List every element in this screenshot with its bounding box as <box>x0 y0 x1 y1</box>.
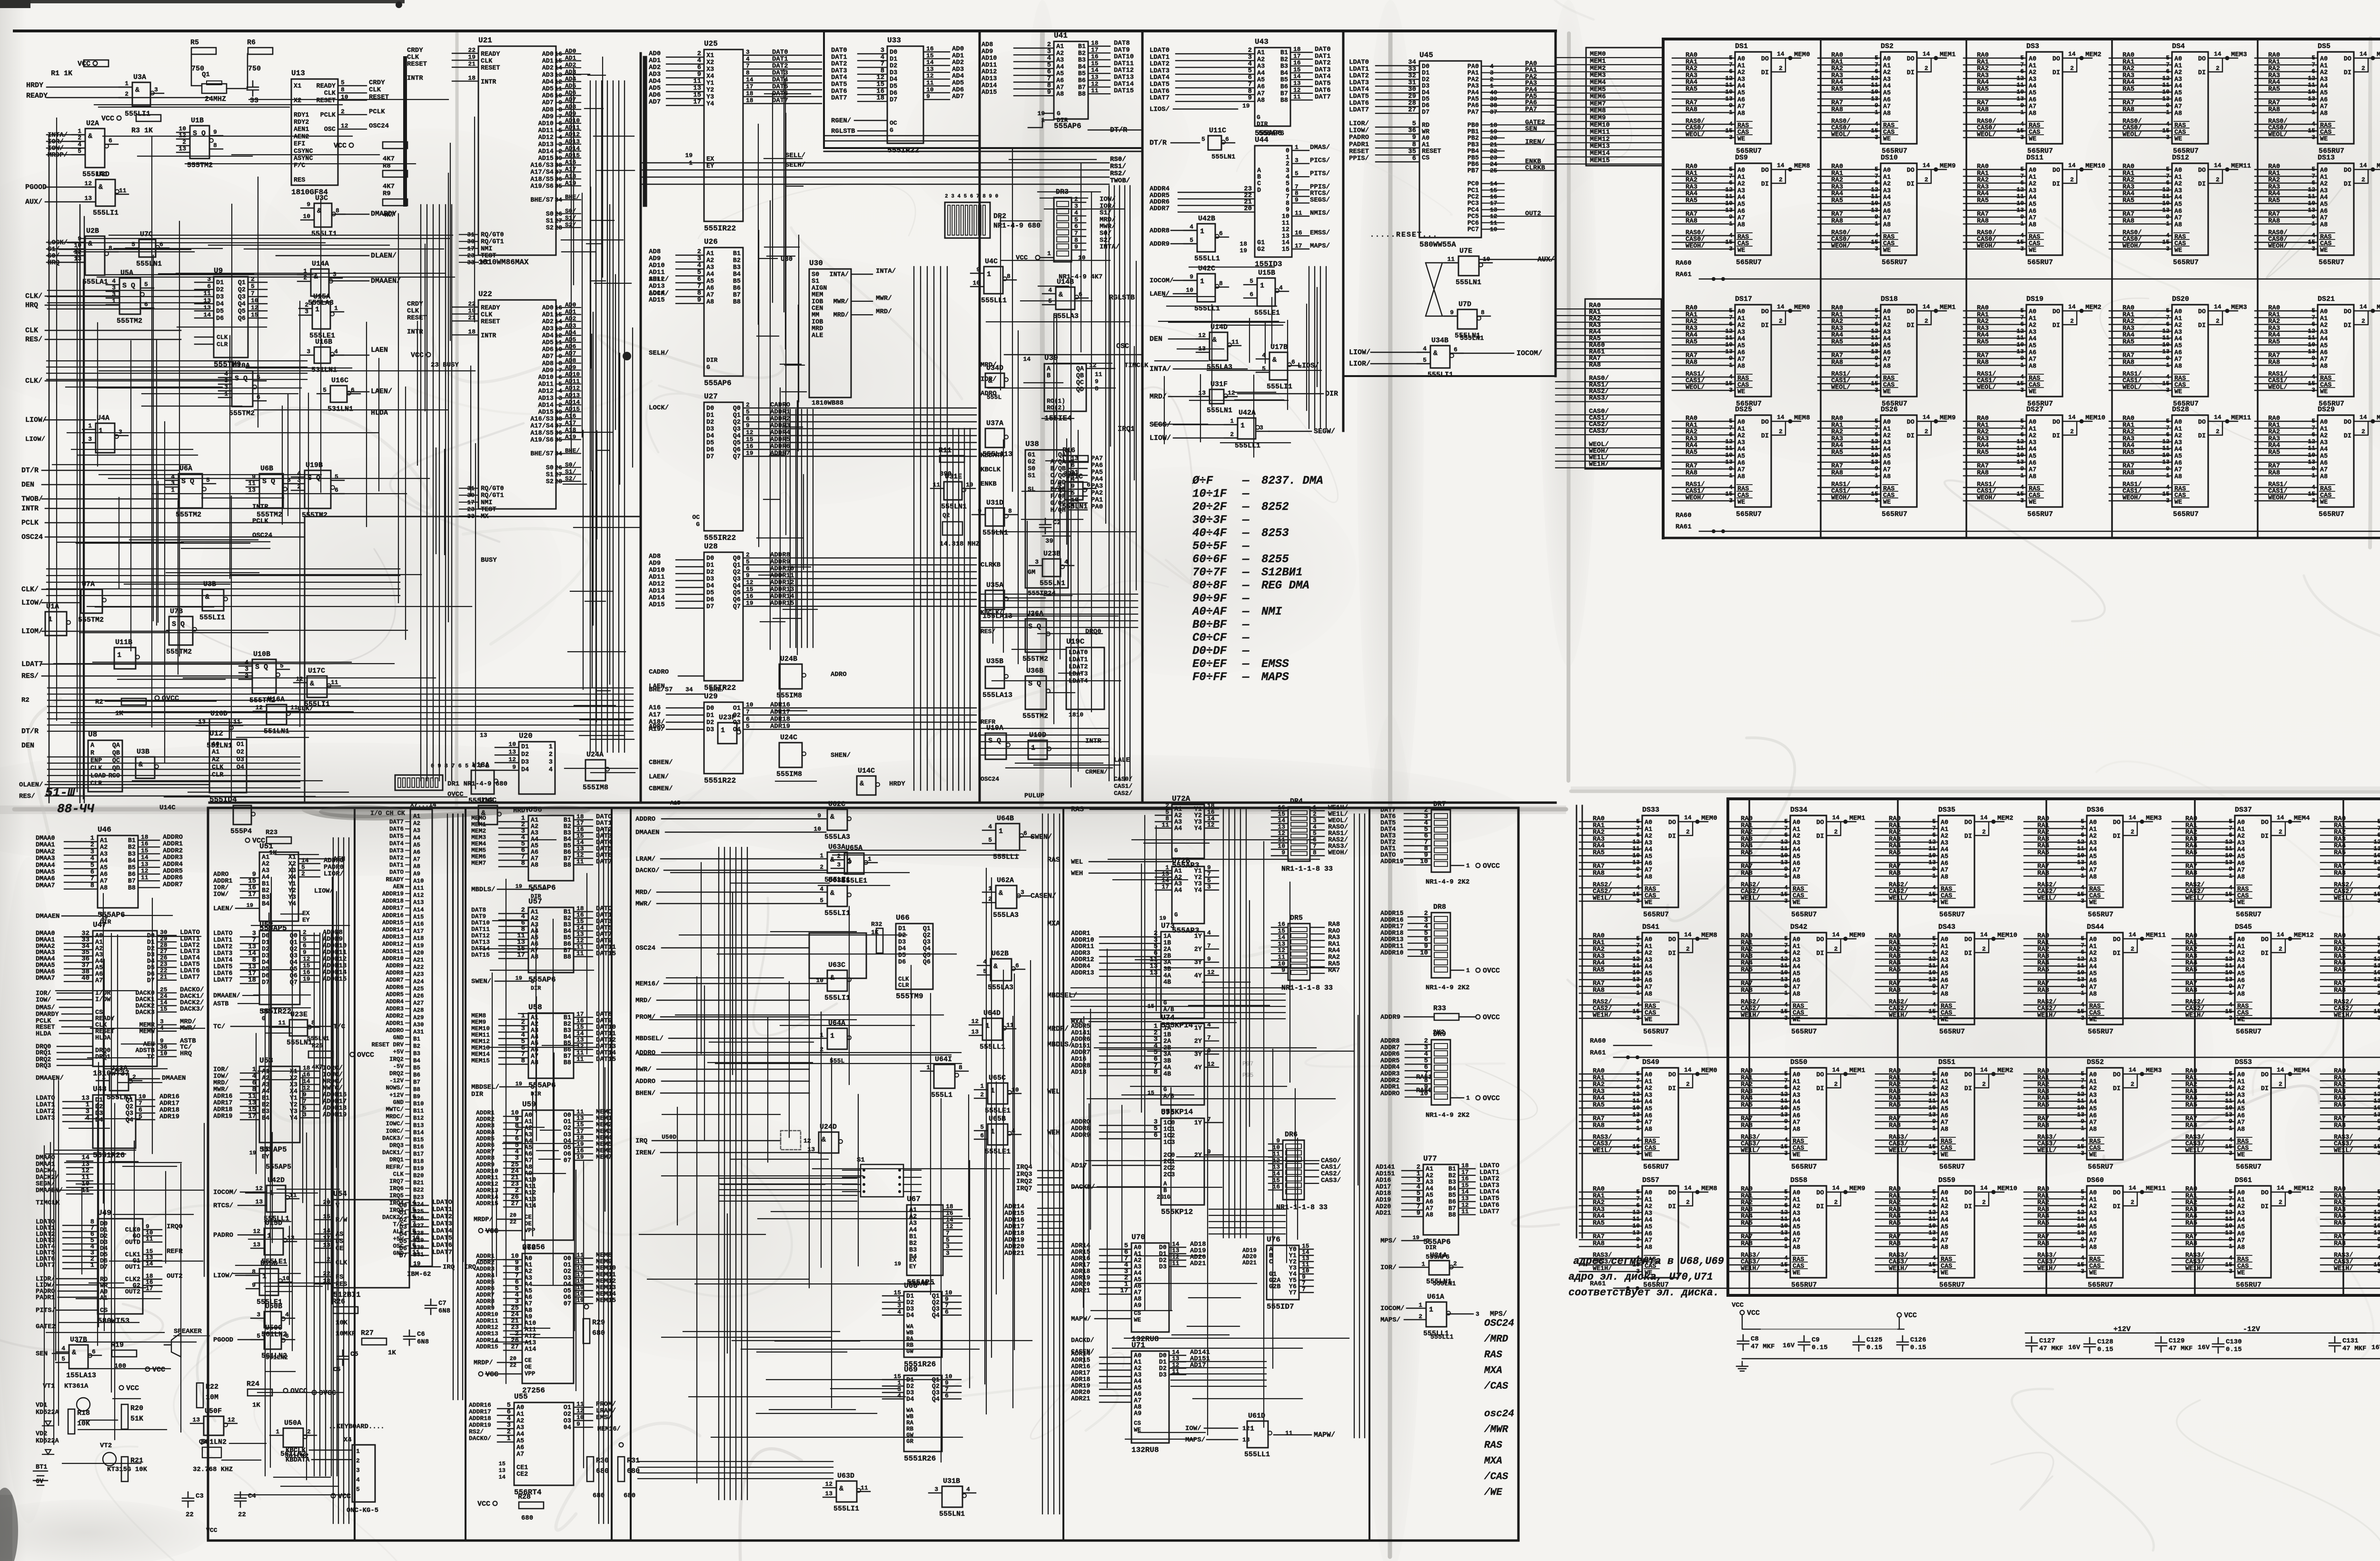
svg-text:DMAA0: DMAA0 <box>36 835 55 842</box>
svg-text:CBMEN/: CBMEN/ <box>649 785 673 793</box>
svg-text:C126: C126 <box>1910 1336 1926 1344</box>
svg-text:QB: QB <box>1076 373 1084 380</box>
svg-text:OUT1: OUT1 <box>125 1264 140 1271</box>
svg-text:U63D: U63D <box>837 1472 854 1480</box>
svg-text:15: 15 <box>1091 60 1099 67</box>
svg-text:U67: U67 <box>907 1195 921 1203</box>
svg-text:MWR/: MWR/ <box>635 1066 652 1074</box>
svg-text:LDAT5: LDAT5 <box>213 964 233 971</box>
svg-text:12: 12 <box>303 1084 310 1092</box>
svg-text:—: — <box>1242 619 1249 632</box>
svg-text:CLR: CLR <box>217 341 228 348</box>
svg-text:A/QA: A/QA <box>1051 459 1066 466</box>
svg-text:32.768 KHZ: 32.768 KHZ <box>193 1466 233 1473</box>
svg-text:13: 13 <box>192 1416 200 1423</box>
svg-text:RESET DRV: RESET DRV <box>371 1042 404 1048</box>
svg-text:—: — <box>1242 579 1249 592</box>
svg-text:47 MKF: 47 MKF <box>1751 1343 1775 1351</box>
svg-text:B29: B29 <box>413 1237 424 1244</box>
svg-text:18: 18 <box>746 90 754 97</box>
svg-text:14.318 MHZ: 14.318 MHZ <box>940 540 980 548</box>
svg-text:WE1H/: WE1H/ <box>2185 1012 2205 1019</box>
svg-text:2: 2 <box>132 1074 136 1081</box>
svg-text:CAS2/: CAS2/ <box>1741 1005 1760 1013</box>
svg-text:VCC: VCC <box>101 115 114 123</box>
svg-text:B8: B8 <box>1280 97 1288 104</box>
svg-text:ADDR1: ADDR1 <box>213 878 233 885</box>
svg-text:DS11: DS11 <box>2026 154 2043 162</box>
svg-text:WEOL/: WEOL/ <box>1977 384 1996 391</box>
svg-text:Q2: Q2 <box>733 569 741 576</box>
svg-text:555LI1: 555LI1 <box>125 110 150 118</box>
svg-text:IRQ: IRQ <box>635 1137 647 1145</box>
svg-text:1: 1 <box>987 270 991 278</box>
svg-text:D5: D5 <box>890 83 897 90</box>
svg-text:9: 9 <box>1412 134 1416 141</box>
svg-text:16: 16 <box>746 593 754 600</box>
svg-text:X3: X3 <box>706 66 714 73</box>
svg-text:A21: A21 <box>413 957 424 964</box>
svg-text:4: 4 <box>112 278 116 285</box>
svg-text:4: 4 <box>746 56 750 63</box>
svg-text:A2: A2 <box>212 756 219 764</box>
svg-text:580WI53: 580WI53 <box>98 1317 129 1325</box>
svg-text:A4: A4 <box>1426 1185 1433 1193</box>
svg-text:WEOL/: WEOL/ <box>2268 131 2288 139</box>
svg-text:680: 680 <box>627 1467 640 1475</box>
svg-text:10: 10 <box>746 701 754 708</box>
svg-text:U10B: U10B <box>253 650 270 658</box>
svg-text:5: 5 <box>1286 180 1289 188</box>
svg-text:B23: B23 <box>413 1194 424 1201</box>
svg-text:—: — <box>1242 514 1249 527</box>
svg-text:S0: S0 <box>546 465 554 472</box>
svg-text:16: 16 <box>1272 1183 1280 1191</box>
svg-text:OE: OE <box>525 1221 532 1227</box>
svg-text:U14C: U14C <box>858 767 875 775</box>
svg-text:CRDY: CRDY <box>407 47 423 54</box>
svg-text:555TM2: 555TM2 <box>1022 655 1048 663</box>
svg-text:DAT7: DAT7 <box>1315 93 1331 101</box>
svg-text:6: 6 <box>1023 830 1027 837</box>
svg-text:IOR/: IOR/ <box>213 1066 228 1074</box>
svg-text:IOCOM/: IOCOM/ <box>1150 277 1173 285</box>
svg-text:DS51: DS51 <box>1938 1058 1955 1066</box>
svg-text:PA7: PA7 <box>1525 106 1537 113</box>
svg-text:LDAT1: LDAT1 <box>432 1206 452 1213</box>
svg-text:3: 3 <box>356 1467 360 1474</box>
svg-text:EY: EY <box>909 1263 917 1270</box>
svg-text:IOCOM/: IOCOM/ <box>1380 1305 1404 1312</box>
svg-text:A8: A8 <box>1426 1212 1433 1219</box>
svg-text:U27: U27 <box>704 392 718 401</box>
svg-text:D6: D6 <box>890 90 897 97</box>
svg-text:LIOW/: LIOW/ <box>1150 434 1171 442</box>
svg-text:ADDR7: ADDR7 <box>1380 1044 1400 1052</box>
svg-text:1K: 1K <box>252 1402 260 1409</box>
svg-text:MEM1: MEM1 <box>1590 58 1606 65</box>
svg-text:CLRKB: CLRKB <box>981 561 1001 569</box>
svg-text:CAS0/: CAS0/ <box>2122 236 2142 243</box>
svg-text:SEN: SEN <box>1525 125 1537 133</box>
svg-text:AD11: AD11 <box>538 128 554 135</box>
svg-text:AD141: AD141 <box>1071 1030 1091 1037</box>
svg-text:PADR1: PADR1 <box>1349 141 1369 149</box>
svg-text:7: 7 <box>1074 230 1078 237</box>
svg-text:3: 3 <box>1476 1311 1479 1318</box>
svg-text:18: 18 <box>468 74 476 81</box>
svg-text:D1: D1 <box>706 562 714 569</box>
svg-text:5: 5 <box>820 897 823 904</box>
svg-text:ADDR18: ADDR18 <box>1380 930 1404 937</box>
svg-text:12: 12 <box>1228 389 1235 397</box>
svg-text:Q1: Q1 <box>238 279 246 287</box>
svg-text:18: 18 <box>876 94 884 102</box>
svg-text:R: R <box>90 750 95 757</box>
svg-text:4B: 4B <box>1163 1071 1171 1078</box>
svg-text:U50F: U50F <box>205 1407 222 1415</box>
svg-text:DS12: DS12 <box>2172 154 2189 162</box>
svg-text:IREN/: IREN/ <box>635 1149 655 1157</box>
svg-text:9: 9 <box>926 93 930 100</box>
svg-text:ADR21: ADR21 <box>1071 1396 1091 1403</box>
svg-text:555LN1: 555LN1 <box>136 260 162 268</box>
svg-text:KBCLK: KBCLK <box>286 1447 306 1454</box>
svg-text:9: 9 <box>1450 309 1454 316</box>
svg-text:B3: B3 <box>128 851 136 858</box>
svg-text:LDAT7: LDAT7 <box>36 1262 55 1269</box>
svg-text:12: 12 <box>971 1018 979 1025</box>
svg-text:D2: D2 <box>706 569 714 576</box>
svg-text:B4: B4 <box>262 901 269 908</box>
svg-text:A3: A3 <box>909 1220 917 1227</box>
svg-text:DS41: DS41 <box>1642 923 1659 931</box>
svg-text:B15: B15 <box>413 1137 424 1143</box>
svg-text:6: 6 <box>1412 155 1416 162</box>
svg-text:E0÷EF: E0÷EF <box>1192 658 1227 671</box>
svg-text:MEM5: MEM5 <box>1590 86 1606 94</box>
svg-text:1: 1 <box>78 128 81 135</box>
svg-text:CAS3/: CAS3/ <box>2037 1141 2057 1148</box>
svg-text:3A: 3A <box>1163 1051 1171 1058</box>
svg-text:14: 14 <box>141 854 149 861</box>
svg-text:RAS1/: RAS1/ <box>1686 371 1705 378</box>
svg-text:ADDR19: ADDR19 <box>382 891 404 897</box>
svg-text:MRD/: MRD/ <box>635 889 652 896</box>
svg-text:12: 12 <box>178 132 186 139</box>
svg-text:555LE1: 555LE1 <box>1254 309 1280 317</box>
svg-text:6: 6 <box>1286 187 1289 194</box>
svg-text:B6: B6 <box>733 285 741 292</box>
svg-text:NR1-4-9 2K2: NR1-4-9 2K2 <box>1426 1112 1469 1119</box>
svg-text:INTA/: INTA/ <box>829 271 849 278</box>
svg-text:10M: 10M <box>206 1393 218 1402</box>
svg-text:B1: B1 <box>262 881 269 888</box>
svg-text:CLK: CLK <box>25 327 38 335</box>
svg-text:10: 10 <box>1071 497 1079 504</box>
svg-text:G: G <box>1257 114 1260 121</box>
svg-text:MEM1: MEM1 <box>1849 815 1865 822</box>
svg-text:80÷8F: 80÷8F <box>1192 579 1227 592</box>
svg-text:B1: B1 <box>909 1233 917 1241</box>
svg-text:DS57: DS57 <box>1642 1176 1659 1184</box>
svg-text:IOR/: IOR/ <box>36 990 51 997</box>
svg-text:AD15: AD15 <box>565 406 580 413</box>
svg-text:CLK: CLK <box>393 1171 404 1178</box>
svg-text:A19: A19 <box>565 179 576 187</box>
svg-text:12: 12 <box>253 1228 260 1235</box>
svg-text:X1: X1 <box>294 83 301 90</box>
svg-text:AD13: AD13 <box>538 395 554 402</box>
svg-text:AD5: AD5 <box>542 339 554 347</box>
svg-text:B1: B1 <box>1280 50 1288 57</box>
svg-text:A17: A17 <box>413 928 424 935</box>
svg-text:DMAA2: DMAA2 <box>36 848 55 855</box>
svg-text:12: 12 <box>255 704 263 711</box>
svg-text:MRD/: MRD/ <box>876 308 892 316</box>
svg-text:2Y: 2Y <box>1194 1038 1202 1045</box>
svg-text:VCC: VCC <box>486 1371 498 1379</box>
svg-text:AD11: AD11 <box>982 62 997 69</box>
svg-text:O1: O1 <box>733 705 741 712</box>
svg-text:R33: R33 <box>1433 1004 1446 1013</box>
svg-text:DAT3: DAT3 <box>389 847 404 854</box>
svg-text:6: 6 <box>1225 136 1229 143</box>
svg-text:11: 11 <box>278 1019 286 1026</box>
svg-text:D3: D3 <box>1159 1264 1167 1271</box>
svg-text:MEM3: MEM3 <box>2146 815 2162 822</box>
svg-text:LAEN: LAEN <box>371 346 388 354</box>
svg-text:PADRO: PADRO <box>213 1232 233 1239</box>
svg-text:/MWR: /MWR <box>1484 1424 1508 1435</box>
svg-text:3: 3 <box>171 480 175 487</box>
svg-text:PC7: PC7 <box>1468 227 1479 234</box>
svg-text:U30: U30 <box>809 259 823 268</box>
svg-text:8: 8 <box>1412 141 1416 149</box>
svg-text:S Q: S Q <box>235 375 248 383</box>
svg-text:B6: B6 <box>413 1072 420 1079</box>
svg-text:VCC: VCC <box>1732 1302 1744 1309</box>
svg-text:6: 6 <box>92 1348 96 1355</box>
svg-text:LDAT2: LDAT2 <box>213 944 233 951</box>
svg-text:7: 7 <box>1302 1286 1306 1293</box>
svg-text:DIR: DIR <box>1257 120 1268 128</box>
svg-text:U11C: U11C <box>1209 127 1226 135</box>
svg-text:19: 19 <box>1413 1234 1419 1241</box>
svg-text:C/QC: C/QC <box>1051 473 1066 480</box>
svg-text:C8: C8 <box>1751 1335 1759 1343</box>
svg-text:ADR18: ADR18 <box>213 1106 233 1114</box>
svg-text:5: 5 <box>1190 237 1193 244</box>
svg-text:IOR/: IOR/ <box>1380 1264 1397 1272</box>
svg-text:C128: C128 <box>2097 1338 2113 1346</box>
svg-text:G2B: G2B <box>1269 1283 1280 1291</box>
svg-text:A16/S3: A16/S3 <box>530 162 554 169</box>
svg-text:3: 3 <box>746 49 750 56</box>
svg-text:RA: RA <box>906 1420 914 1426</box>
svg-text:680: 680 <box>521 1514 533 1522</box>
svg-text:MBDSEL/: MBDSEL/ <box>635 1035 664 1043</box>
svg-text:A4: A4 <box>262 874 269 881</box>
svg-text:LDAT2: LDAT2 <box>432 1213 452 1221</box>
svg-text:CAS3/: CAS3/ <box>1589 428 1609 435</box>
svg-text:4: 4 <box>820 885 823 893</box>
svg-text:ADDR5: ADDR5 <box>386 991 404 998</box>
svg-text:1Y: 1Y <box>1194 1025 1202 1032</box>
svg-text:RES: RES <box>294 177 305 184</box>
svg-text:11: 11 <box>576 1401 584 1408</box>
svg-text:12: 12 <box>228 1416 235 1423</box>
svg-text:Q4: Q4 <box>290 959 297 966</box>
svg-text:U23F: U23F <box>719 714 736 722</box>
svg-text:SL: SL <box>1028 487 1035 494</box>
svg-text:LIOW/: LIOW/ <box>314 888 334 895</box>
svg-text:A8: A8 <box>531 862 538 869</box>
svg-text:C9: C9 <box>1812 1336 1820 1344</box>
svg-text:ADR19: ADR19 <box>213 1113 233 1120</box>
svg-text:Q2: Q2 <box>923 932 931 939</box>
svg-text:MEM8: MEM8 <box>1794 414 1810 422</box>
svg-text:D3: D3 <box>706 426 714 433</box>
svg-text:U10A: U10A <box>233 362 250 370</box>
svg-text:SEGS/: SEGS/ <box>1310 196 1330 204</box>
svg-text:MEM3: MEM3 <box>2146 1067 2162 1074</box>
svg-text:AD4: AD4 <box>565 329 576 336</box>
svg-text:DMAAEN: DMAAEN <box>36 913 59 920</box>
svg-text:ADDR7: ADDR7 <box>1150 205 1170 212</box>
svg-text:Q4: Q4 <box>733 433 741 440</box>
svg-text:WEOL/: WEOL/ <box>1686 384 1705 391</box>
svg-text:RTCS/: RTCS/ <box>213 1202 233 1210</box>
svg-text:CAS2/: CAS2/ <box>2037 1005 2057 1013</box>
svg-text:DR5: DR5 <box>1290 914 1303 922</box>
svg-text:CAS2/: CAS2/ <box>2185 888 2205 895</box>
svg-text:RA61: RA61 <box>1676 523 1692 531</box>
svg-text:ADDR8: ADDR8 <box>1071 1063 1091 1070</box>
svg-text:A12: A12 <box>413 892 424 899</box>
svg-text:A4: A4 <box>1257 70 1265 77</box>
svg-text:B3: B3 <box>1448 1179 1456 1186</box>
svg-text:PADR1: PADR1 <box>36 1294 55 1302</box>
svg-text:G: G <box>1174 847 1178 854</box>
svg-text:ADDR7: ADDR7 <box>163 881 183 888</box>
svg-text:60÷6F: 60÷6F <box>1192 553 1227 566</box>
svg-text:LRAM/: LRAM/ <box>635 855 655 863</box>
svg-text:A15: A15 <box>670 800 681 806</box>
svg-text:2: 2 <box>303 274 307 281</box>
svg-text:2B: 2B <box>1163 953 1171 960</box>
svg-text:10: 10 <box>816 977 823 984</box>
svg-text:MEM4: MEM4 <box>1590 79 1606 87</box>
svg-text:D1: D1 <box>262 939 269 946</box>
svg-text:U14C: U14C <box>479 796 496 805</box>
svg-text:555LA13: 555LA13 <box>982 691 1012 699</box>
svg-text:A: A <box>1163 1181 1167 1187</box>
svg-text:ALE: ALE <box>393 1229 404 1235</box>
svg-text:IRQ3: IRQ3 <box>389 1207 404 1213</box>
svg-text:TWOB/: TWOB/ <box>21 495 43 503</box>
svg-text:4: 4 <box>897 1309 901 1316</box>
svg-text:Q6: Q6 <box>733 597 741 604</box>
svg-text:CRDY: CRDY <box>369 79 385 87</box>
svg-text:10: 10 <box>303 213 310 220</box>
svg-text:R23: R23 <box>266 829 278 836</box>
svg-text:LOCK/: LOCK/ <box>649 404 669 412</box>
svg-text:Q5: Q5 <box>923 952 931 959</box>
svg-text:Q6: Q6 <box>923 959 931 966</box>
svg-text:CAS1/: CAS1/ <box>1831 488 1851 495</box>
svg-text:ADDR3: ADDR3 <box>1071 950 1091 957</box>
svg-text:D2: D2 <box>706 419 714 426</box>
svg-text:DACKO/: DACKO/ <box>469 1435 491 1442</box>
svg-text:D3: D3 <box>216 294 224 301</box>
svg-text:A1: A1 <box>1257 50 1265 57</box>
svg-text:DAT7: DAT7 <box>389 819 404 825</box>
svg-text:1: 1 <box>1418 1302 1422 1309</box>
svg-text:Q1: Q1 <box>202 71 210 79</box>
svg-text:KBDATA: KBDATA <box>981 452 1005 459</box>
svg-text:ADDR15: ADDR15 <box>382 919 404 926</box>
svg-text:VD1: VD1 <box>36 1402 47 1409</box>
svg-text:B7: B7 <box>733 292 741 299</box>
svg-text:1: 1 <box>1295 144 1299 151</box>
svg-text:16: 16 <box>1295 229 1302 236</box>
svg-text:RAS1/: RAS1/ <box>1977 371 1996 378</box>
svg-text:AD10: AD10 <box>538 374 554 381</box>
svg-text:1: 1 <box>1429 1306 1433 1314</box>
svg-text:U72B: U72B <box>1172 856 1190 865</box>
svg-text:G: G <box>1174 912 1178 918</box>
svg-text:AD7: AD7 <box>542 99 554 107</box>
svg-text:KD522A: KD522A <box>36 1438 59 1445</box>
svg-text:AD14: AD14 <box>982 82 997 89</box>
svg-text:KBCLK/: KBCLK/ <box>981 609 1003 616</box>
svg-text:OSC24: OSC24 <box>21 533 43 541</box>
svg-text:19: 19 <box>516 1081 522 1087</box>
svg-text:U15C: U15C <box>260 1260 278 1268</box>
svg-text:IOW/: IOW/ <box>213 1073 228 1080</box>
svg-text:U42C: U42C <box>1198 265 1215 273</box>
svg-text:U28: U28 <box>704 542 718 551</box>
svg-text:RDY1: RDY1 <box>294 112 309 119</box>
svg-text:LALE: LALE <box>1114 756 1130 764</box>
svg-text:&: & <box>88 132 92 140</box>
svg-text:INTA/: INTA/ <box>1150 365 1171 373</box>
svg-text:A17: A17 <box>565 419 576 427</box>
svg-text:G: G <box>696 521 700 528</box>
svg-text:C129: C129 <box>2169 1337 2185 1345</box>
svg-text:A7: A7 <box>95 977 103 984</box>
svg-text:CS: CS <box>1422 155 1429 162</box>
svg-text:A4: A4 <box>262 1088 269 1095</box>
svg-text:19: 19 <box>576 1153 584 1161</box>
svg-text:155LA13: 155LA13 <box>66 1372 96 1380</box>
svg-text:A1: A1 <box>262 1068 269 1075</box>
svg-text:555LL1: 555LL1 <box>1244 1451 1270 1459</box>
svg-text:MEM12: MEM12 <box>2294 1185 2314 1193</box>
svg-text:DS20: DS20 <box>2172 295 2189 303</box>
svg-text:A4: A4 <box>100 858 108 865</box>
svg-text:A6: A6 <box>516 1444 524 1452</box>
svg-text:WE1L/: WE1L/ <box>1593 1147 1612 1154</box>
svg-text:DEN: DEN <box>1150 335 1162 343</box>
svg-text:LAEN/: LAEN/ <box>649 773 669 781</box>
svg-text:1: 1 <box>980 1083 984 1090</box>
svg-text:B4: B4 <box>1078 64 1086 71</box>
svg-text:LAEN/: LAEN/ <box>213 905 233 913</box>
svg-text:132RU8: 132RU8 <box>1131 1446 1159 1454</box>
svg-text:13: 13 <box>287 1234 295 1242</box>
